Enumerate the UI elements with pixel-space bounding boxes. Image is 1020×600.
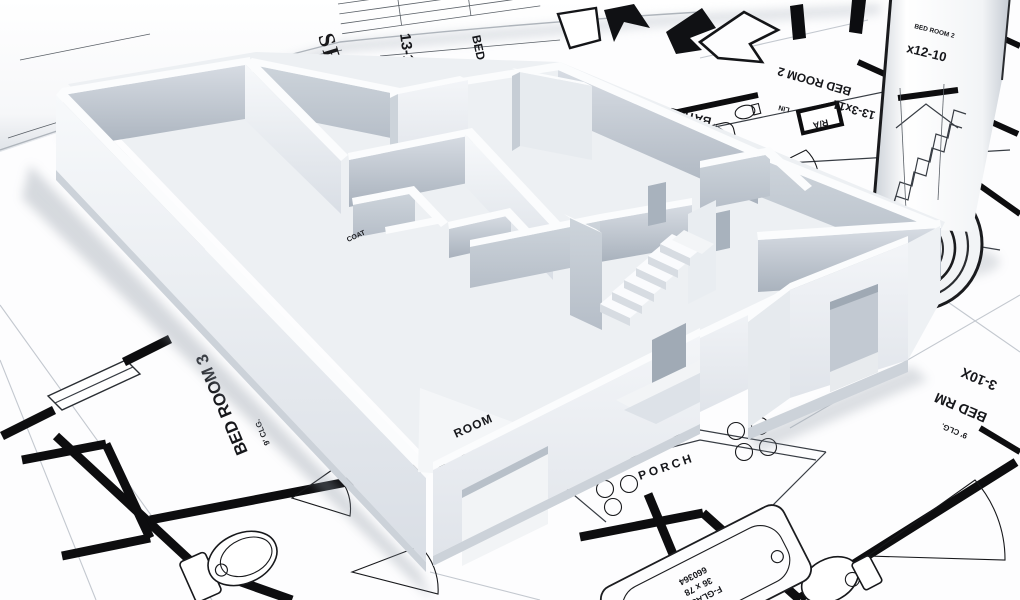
architectural-render: R/A BATH 2 LIN BED ROOM 2 13-3x11 PORCH: [0, 0, 1020, 600]
scene-canvas: R/A BATH 2 LIN BED ROOM 2 13-3x11 PORCH: [0, 0, 1020, 600]
